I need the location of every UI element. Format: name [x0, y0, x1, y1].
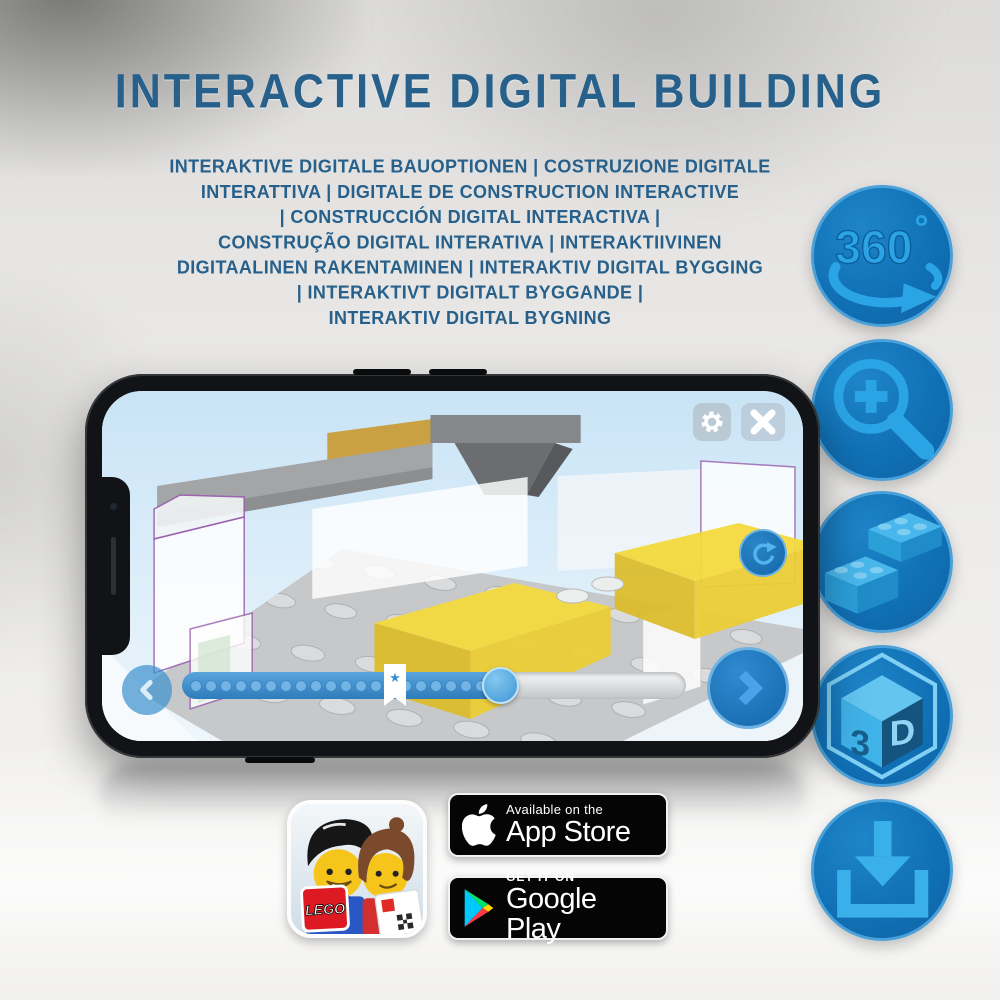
- progress-fill: [182, 672, 500, 699]
- feature-zoom-icon: [811, 339, 953, 481]
- 3d-left-label: 3: [850, 722, 870, 765]
- feature-3d-view-icon: 3 D: [811, 645, 953, 787]
- volume-button: [353, 369, 411, 375]
- subtitle-line: INTERAKTIV DIGITAL BYGNING: [110, 305, 830, 330]
- app-store-badge[interactable]: Available on the App Store: [448, 793, 668, 857]
- multilingual-subtitle: INTERAKTIVE DIGITALE BAUOPTIONEN | COSTR…: [110, 154, 830, 330]
- next-step-button[interactable]: [707, 647, 789, 729]
- build-progress-slider[interactable]: ★: [182, 672, 686, 699]
- power-button: [245, 757, 315, 763]
- app-store-name: App Store: [506, 817, 630, 847]
- apple-logo-icon: [462, 804, 496, 846]
- lego-logo-text: LEGO: [305, 900, 346, 918]
- page-title: INTERACTIVE DIGITAL BUILDING: [0, 65, 1000, 120]
- lego-app-icon[interactable]: LEGO: [287, 800, 427, 938]
- feature-brick-icon: [811, 491, 953, 633]
- phone-notch: [102, 477, 130, 655]
- feature-360-rotation-icon: 360 °: [811, 185, 953, 327]
- subtitle-line: | CONSTRUCCIÓN DIGITAL INTERACTIVA |: [110, 204, 830, 229]
- google-play-logo-icon: [462, 888, 496, 928]
- subtitle-line: INTERAKTIVE DIGITALE BAUOPTIONEN | COSTR…: [110, 154, 830, 179]
- app-store-tagline: Available on the: [506, 803, 630, 817]
- previous-step-button[interactable]: [122, 665, 172, 715]
- degree-symbol: °: [914, 209, 928, 248]
- feature-download-icon: [811, 799, 953, 941]
- subtitle-line: DIGITAALINEN RAKENTAMINEN | INTERAKTIV D…: [110, 255, 830, 280]
- subtitle-line: CONSTRUÇÃO DIGITAL INTERATIVA | INTERAKT…: [110, 229, 830, 254]
- google-play-tagline: GET IT ON: [506, 871, 654, 884]
- earpiece-speaker: [111, 537, 116, 595]
- settings-gear-button[interactable]: [693, 403, 731, 441]
- 360-label: 360: [835, 221, 912, 273]
- slider-handle[interactable]: [482, 667, 519, 704]
- close-button[interactable]: [741, 403, 785, 441]
- 3d-right-label: D: [890, 711, 916, 754]
- google-play-name: Google Play: [506, 884, 654, 945]
- app-screen: ★: [102, 391, 803, 741]
- front-camera: [110, 503, 117, 510]
- subtitle-line: INTERATTIVA | DIGITALE DE CONSTRUCTION I…: [110, 179, 830, 204]
- subtitle-line: | INTERAKTIVT DIGITALT BYGGANDE |: [110, 280, 830, 305]
- phone: ★: [85, 374, 820, 758]
- rotate-model-button[interactable]: [739, 529, 787, 577]
- google-play-badge[interactable]: GET IT ON Google Play: [448, 876, 668, 940]
- volume-button: [429, 369, 487, 375]
